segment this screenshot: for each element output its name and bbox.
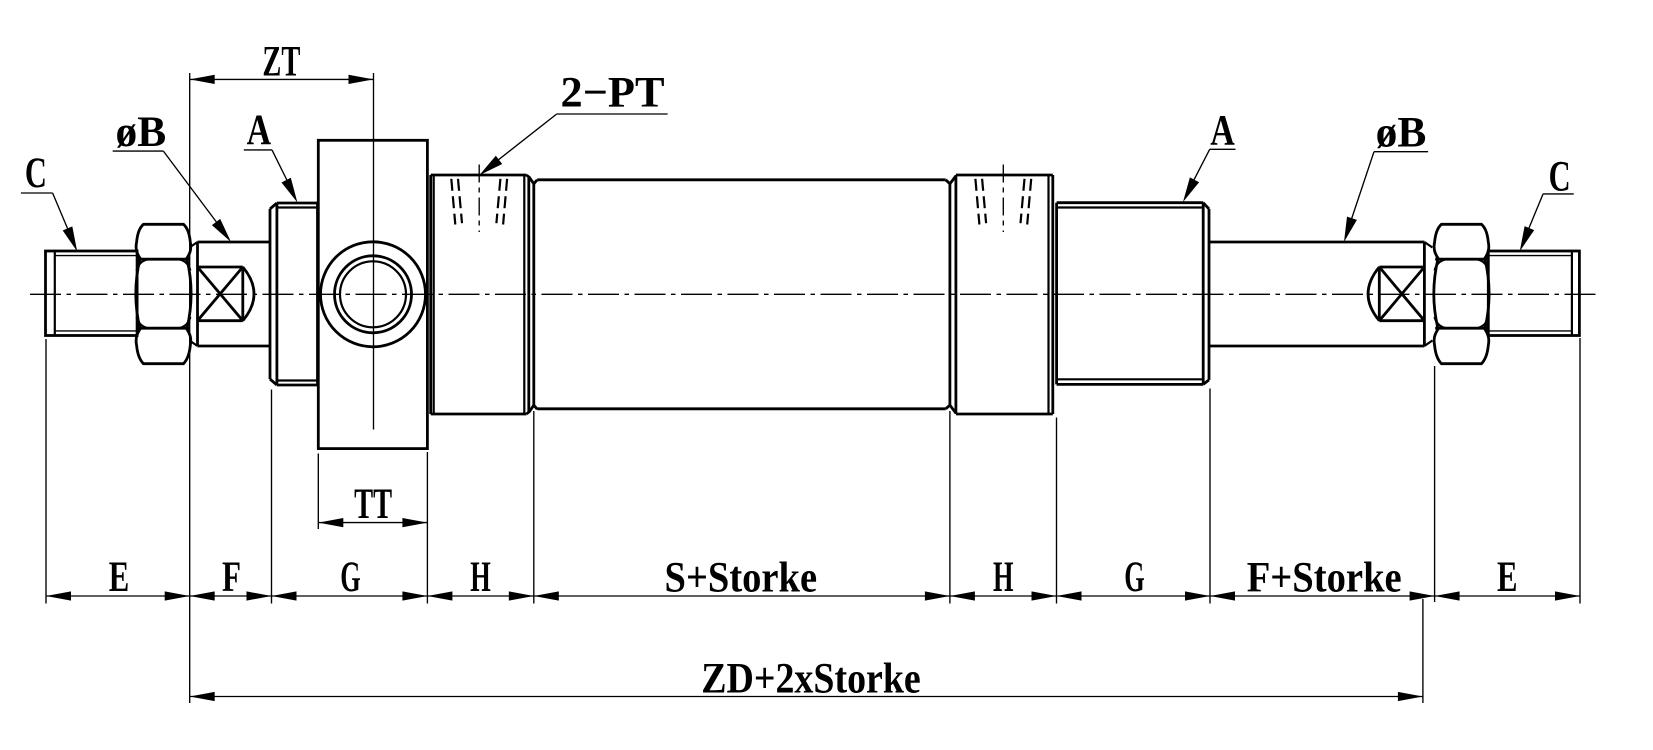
svg-text:C: C	[25, 150, 47, 197]
svg-text:G: G	[1124, 554, 1145, 601]
svg-text:ZD+2xStorke: ZD+2xStorke	[701, 656, 921, 703]
svg-text:A: A	[1210, 107, 1235, 154]
svg-text:2−PT: 2−PT	[561, 70, 665, 117]
svg-text:F+Storke: F+Storke	[1247, 555, 1402, 602]
svg-text:C: C	[1549, 153, 1571, 200]
svg-text:TT: TT	[354, 481, 392, 528]
svg-text:øB: øB	[1376, 110, 1427, 157]
svg-text:A: A	[247, 107, 272, 154]
svg-text:H: H	[470, 554, 491, 601]
svg-text:G: G	[340, 554, 361, 601]
svg-text:F: F	[222, 554, 241, 601]
svg-text:øB: øB	[116, 109, 167, 156]
svg-text:E: E	[109, 554, 130, 601]
svg-text:E: E	[1497, 554, 1518, 601]
svg-text:ZT: ZT	[262, 39, 300, 86]
svg-text:S+Storke: S+Storke	[665, 555, 818, 602]
svg-text:H: H	[993, 554, 1014, 601]
